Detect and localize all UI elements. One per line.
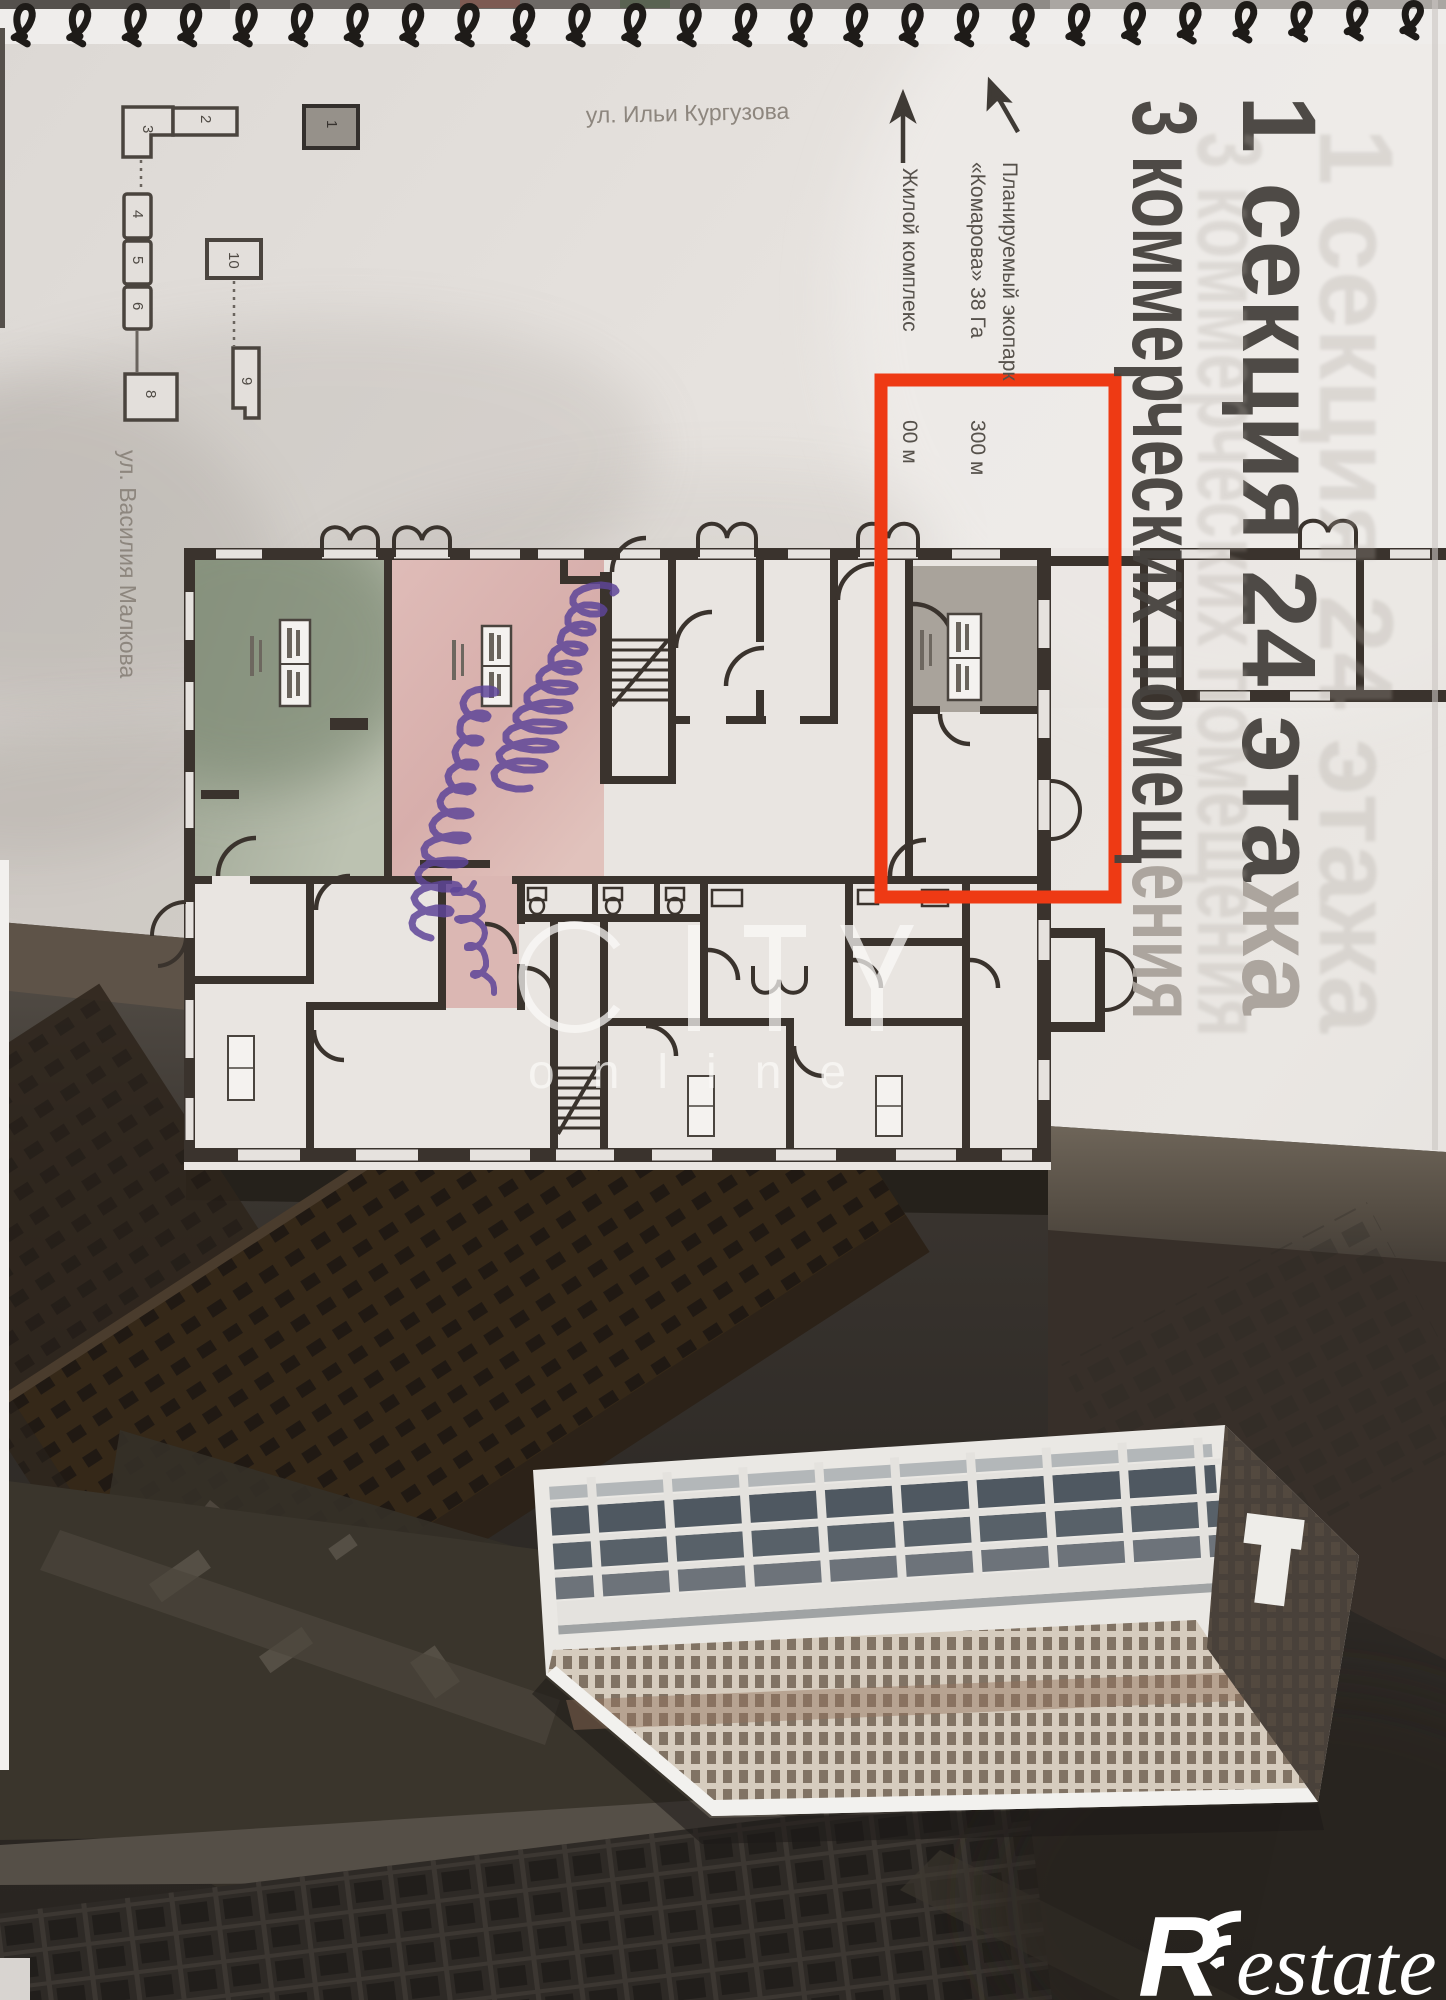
svg-text:00 м: 00 м <box>898 420 921 464</box>
svg-text:3: 3 <box>139 125 156 133</box>
svg-text:Планируемый экопарк: Планируемый экопарк <box>998 162 1021 381</box>
svg-text:Жилой комплекс: Жилой комплекс <box>898 168 921 332</box>
svg-text:ул. Василия Малкова: ул. Василия Малкова <box>115 450 141 678</box>
svg-text:3 коммерческих помещения: 3 коммерческих помещения <box>1113 100 1215 1020</box>
svg-text:6: 6 <box>129 302 146 310</box>
svg-text:online: online <box>528 1046 884 1099</box>
svg-text:4: 4 <box>129 210 146 218</box>
svg-text:10: 10 <box>225 252 242 269</box>
svg-text:8: 8 <box>142 390 159 398</box>
svg-text:5: 5 <box>129 256 146 264</box>
svg-text:9: 9 <box>238 377 255 385</box>
svg-text:ул. Ильи Кургузова: ул. Ильи Кургузова <box>586 98 790 128</box>
svg-text:2: 2 <box>197 115 214 123</box>
svg-text:estate: estate <box>1236 1917 1437 2000</box>
svg-text:1: 1 <box>323 120 340 128</box>
svg-text:«Комарова» 38 Га: «Комарова» 38 Га <box>966 162 989 339</box>
svg-text:300 м: 300 м <box>966 420 989 475</box>
